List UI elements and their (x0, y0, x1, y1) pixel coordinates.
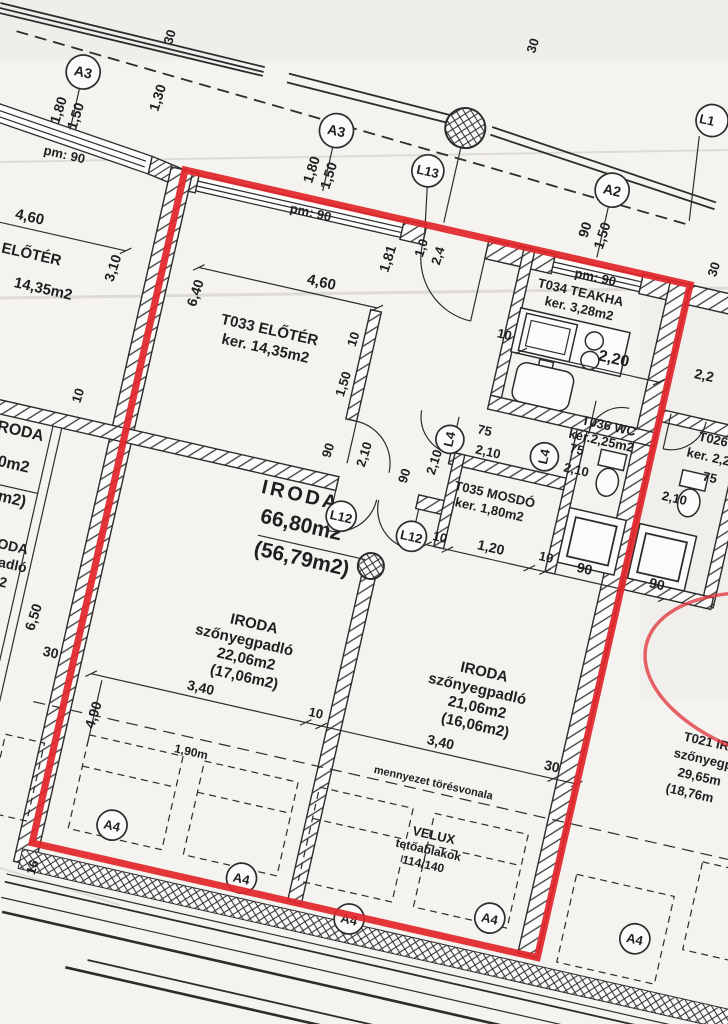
floor-plan-scan: pm: 90 pm: 90 pm: 90 1,80 1,50 1,30 30 3… (0, 0, 728, 1024)
